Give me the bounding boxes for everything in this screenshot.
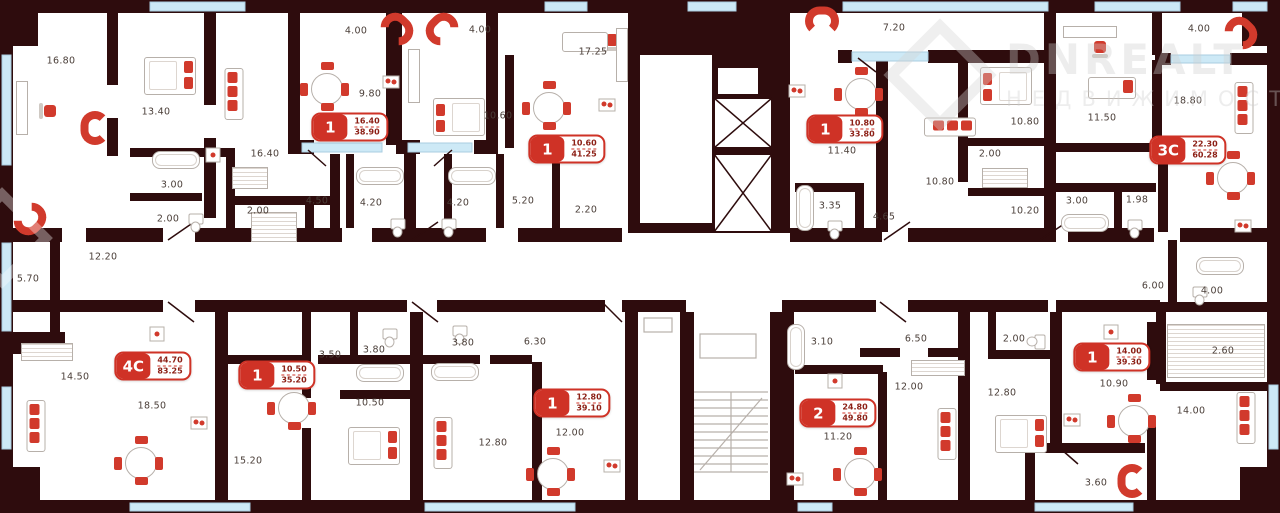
apartment-rooms-count: 1 xyxy=(313,115,347,140)
apartment-rooms-count: 1 xyxy=(808,117,842,142)
apartment-total-area: 33.80 xyxy=(849,130,874,140)
apartment-areas: 44.70 83.25 xyxy=(150,354,189,379)
apartment-rooms-count: 4С xyxy=(116,354,150,379)
apartment-total-area: 41.25 xyxy=(571,150,596,160)
apartment-rooms-count: 1 xyxy=(530,137,564,162)
apartment-badge: 1 10.80 33.80 xyxy=(806,115,883,144)
apartment-areas: 16.40 38.90 xyxy=(347,115,386,140)
floor-plan: 16.8013.4016.403.002.002.0012.205.704.00… xyxy=(0,0,1280,513)
apartment-areas: 24.80 49.80 xyxy=(835,401,874,426)
apartment-badge: 3С 22.30 60.28 xyxy=(1149,136,1226,165)
apartment-areas: 10.60 41.25 xyxy=(564,137,603,162)
apartment-total-area: 39.10 xyxy=(576,404,601,414)
apartment-total-area: 83.25 xyxy=(157,367,182,377)
apartment-rooms-count: 1 xyxy=(535,391,569,416)
apartment-living-area: 14.00 xyxy=(1116,347,1141,358)
apartment-total-area: 35.20 xyxy=(281,376,306,386)
apartment-badge: 2 24.80 49.80 xyxy=(799,399,876,428)
apartment-rooms-count: 1 xyxy=(1075,345,1109,370)
apartment-total-area: 60.28 xyxy=(1192,151,1217,161)
apartment-living-area: 10.60 xyxy=(571,139,596,150)
apartment-badge: 4С 44.70 83.25 xyxy=(114,352,191,381)
apartment-areas: 12.80 39.10 xyxy=(569,391,608,416)
apartment-areas: 10.80 33.80 xyxy=(842,117,881,142)
apartment-areas: 22.30 60.28 xyxy=(1185,138,1224,163)
apartment-living-area: 16.40 xyxy=(354,117,379,128)
apartment-total-area: 38.90 xyxy=(354,128,379,138)
apartment-badge: 1 10.60 41.25 xyxy=(528,135,605,164)
apartment-living-area: 10.80 xyxy=(849,119,874,130)
apartment-areas: 10.50 35.20 xyxy=(274,363,313,388)
apartment-badge: 1 14.00 39.30 xyxy=(1073,343,1150,372)
apartment-badge: 1 16.40 38.90 xyxy=(311,113,388,142)
apartment-rooms-count: 2 xyxy=(801,401,835,426)
apartment-rooms-count: 3С xyxy=(1151,138,1185,163)
apartment-living-area: 22.30 xyxy=(1192,140,1217,151)
apartment-living-area: 44.70 xyxy=(157,356,182,367)
apartment-living-area: 24.80 xyxy=(842,403,867,414)
apartment-rooms-count: 1 xyxy=(240,363,274,388)
apartment-total-area: 49.80 xyxy=(842,414,867,424)
apartment-living-area: 10.50 xyxy=(281,365,306,376)
apartment-badge: 1 10.50 35.20 xyxy=(238,361,315,390)
apartment-badge: 1 12.80 39.10 xyxy=(533,389,610,418)
apartment-areas: 14.00 39.30 xyxy=(1109,345,1148,370)
apartment-total-area: 39.30 xyxy=(1116,358,1141,368)
badges-layer: 1 16.40 38.90 1 10.60 41.25 1 10.80 33.8… xyxy=(0,0,1280,513)
apartment-living-area: 12.80 xyxy=(576,393,601,404)
